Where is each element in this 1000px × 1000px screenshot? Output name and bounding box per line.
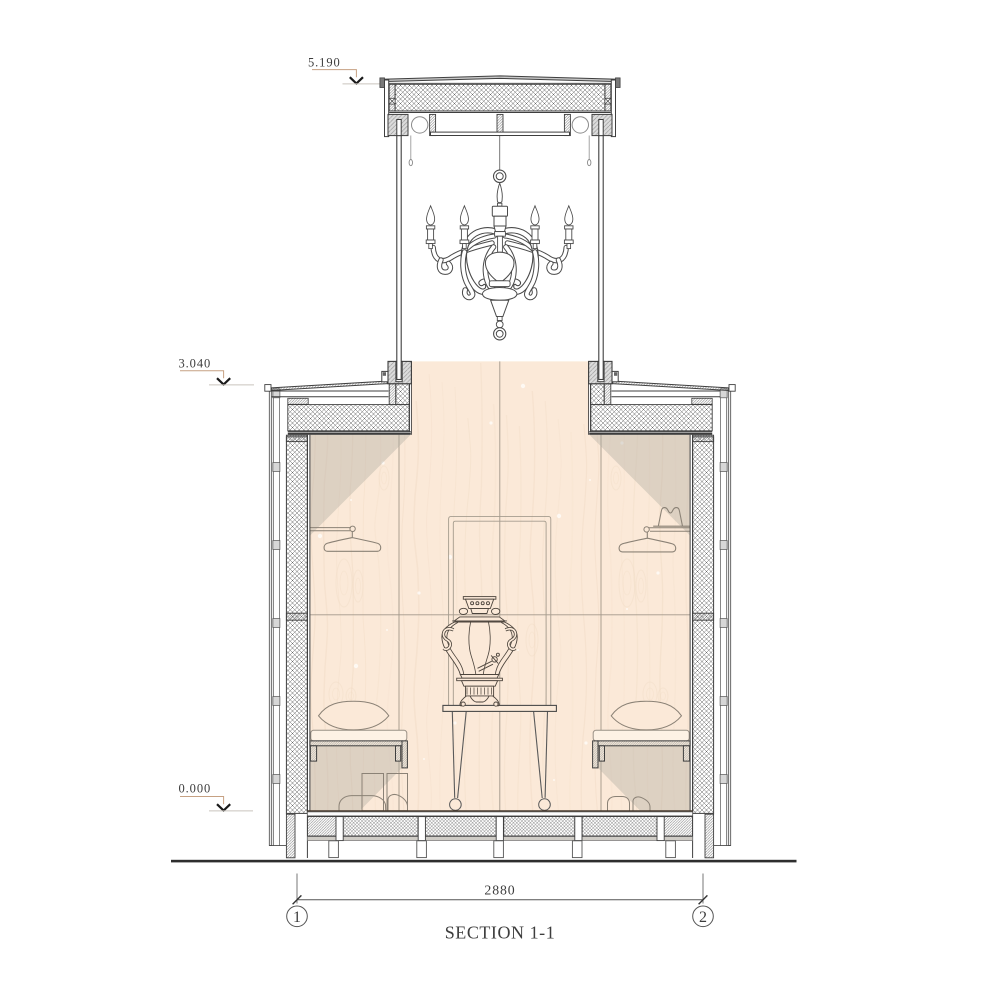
svg-text:1: 1 xyxy=(293,909,301,926)
svg-text:2: 2 xyxy=(699,909,707,926)
svg-text:2880: 2880 xyxy=(484,883,515,898)
svg-text:SECTION 1-1: SECTION 1-1 xyxy=(445,922,556,942)
svg-text:3.040: 3.040 xyxy=(179,357,212,371)
svg-text:5.190: 5.190 xyxy=(308,56,341,70)
svg-text:0.000: 0.000 xyxy=(179,782,212,796)
